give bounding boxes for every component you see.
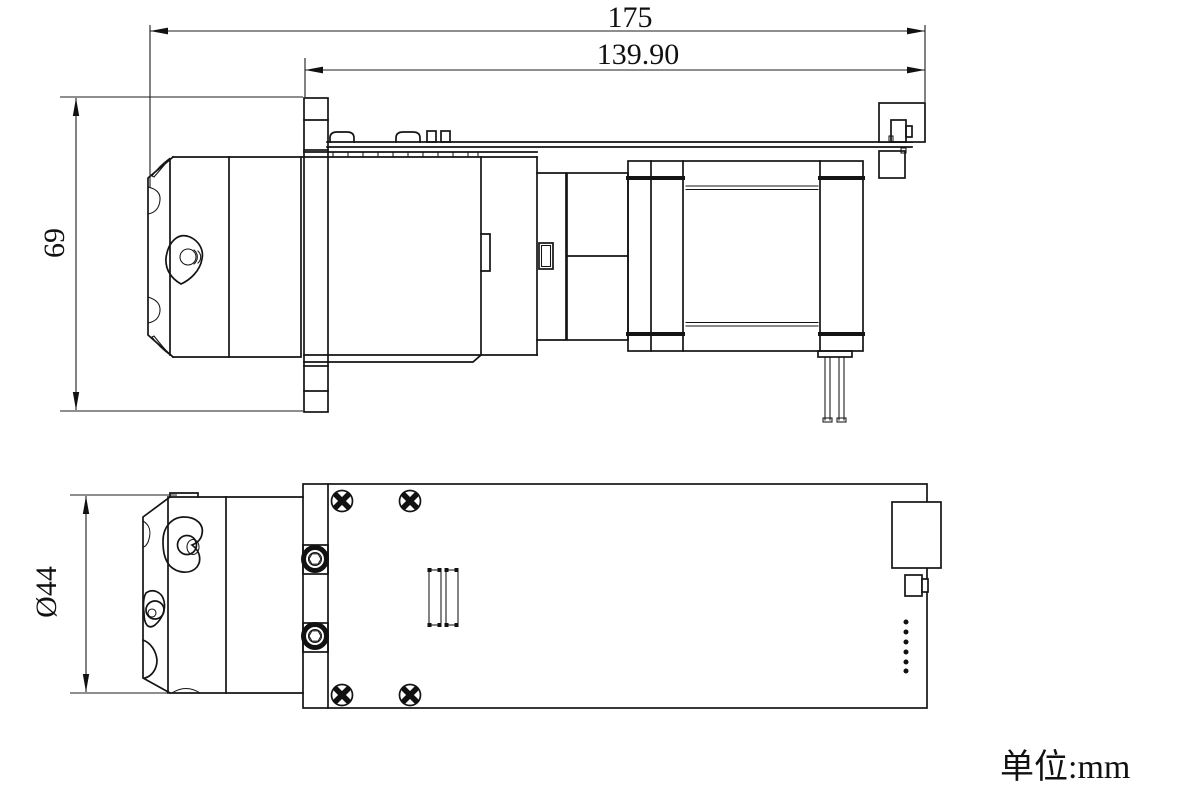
unit-note: 单位:mm (1000, 748, 1130, 786)
dim-overall-height-text: 69 (38, 228, 71, 258)
drawing-canvas: 175 139.90 69 Ø44 单位:mm (0, 0, 1180, 802)
dim-mount-length-text: 139.90 (597, 38, 680, 71)
dim-head-diameter-text: Ø44 (30, 566, 63, 618)
pump-technical-drawing: 175 139.90 69 Ø44 单位:mm (0, 0, 1180, 802)
drawing-background (0, 0, 1180, 802)
pcb-end-connector (879, 103, 925, 142)
dim-overall-length-text: 175 (608, 1, 653, 34)
